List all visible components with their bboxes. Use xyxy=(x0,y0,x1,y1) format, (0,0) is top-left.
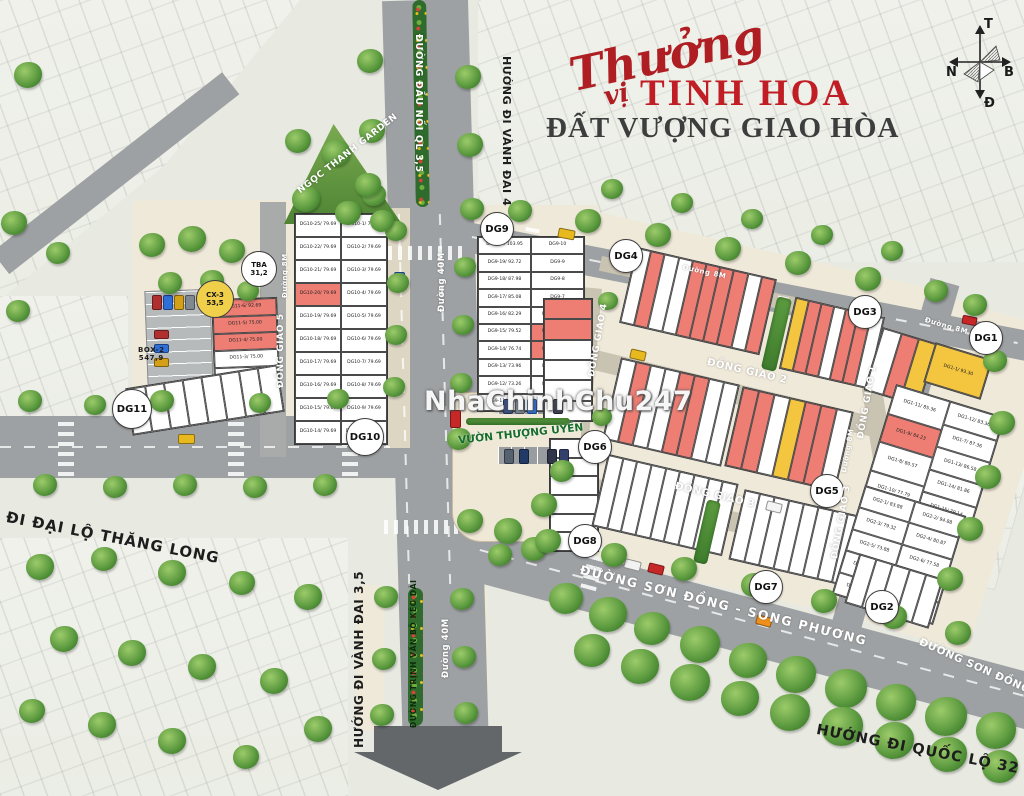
master-plan-map: DG10-25/ 79.69DG10-22/ 79.69DG10-21/ 79.… xyxy=(0,0,1024,796)
tree-icon xyxy=(103,476,127,498)
plot-cell: DG10-22/ 79.69 xyxy=(295,237,341,260)
tree-icon xyxy=(825,669,867,708)
road-label-trinh-van-bo: ĐƯỜNG TRỊNH VĂN BÔ KÉO DÀI xyxy=(409,579,418,728)
road-label-dau-noi-ql35: ĐƯỜNG ĐẦU NỐI QL 3,5 xyxy=(413,34,424,173)
badge-dg10: DG10 xyxy=(346,418,384,456)
car-icon xyxy=(174,295,184,310)
tree-icon xyxy=(574,634,610,667)
tree-icon xyxy=(721,681,759,716)
box2-area: 547,9 xyxy=(138,354,165,362)
plot-cell: DG9-14/ 76.74 xyxy=(478,341,531,358)
tree-icon xyxy=(634,612,670,645)
plot-cell: DG9-16/ 82.29 xyxy=(478,307,531,324)
dg9-left-column: DG9-20/ 103.95DG9-19/ 92.72DG9-18/ 87.98… xyxy=(478,237,531,411)
car-icon xyxy=(163,295,173,310)
badge-dg2: DG2 xyxy=(865,590,899,624)
badge-dg4: DG4 xyxy=(609,239,643,273)
plot-cell: DG10-5/ 79.69 xyxy=(341,306,387,329)
plot-cell: DG10-19/ 79.69 xyxy=(295,306,341,329)
plot-cell: DG9-17/ 85.08 xyxy=(478,289,531,306)
plot-cell xyxy=(544,340,592,360)
compass-d: Đ xyxy=(984,96,995,108)
tree-icon xyxy=(173,474,197,496)
plot-cell xyxy=(544,360,592,380)
car-icon xyxy=(504,449,514,464)
cx3-circle: CX-3 53,5 xyxy=(196,280,234,318)
plot-cell: DG9-10 xyxy=(531,237,584,254)
plot-cell xyxy=(544,319,592,339)
plot-cell: DG10-2/ 79.69 xyxy=(341,237,387,260)
crosswalk xyxy=(388,246,464,260)
dg10-left-column: DG10-25/ 79.69DG10-22/ 79.69DG10-21/ 79.… xyxy=(295,214,341,444)
badge-dg1: DG1 xyxy=(969,321,1003,355)
dg10-right-column: DG10-1/ 79.69DG10-2/ 79.69DG10-3/ 79.69D… xyxy=(341,214,387,444)
tba-circle: TBA 31,2 xyxy=(241,251,277,287)
plot-cell: DG10-20/ 79.69 xyxy=(295,283,341,306)
cx3-area: 53,5 xyxy=(206,299,223,307)
plot-cell: DG9-18/ 87.98 xyxy=(478,272,531,289)
plot-cell: DG10-18/ 79.69 xyxy=(295,329,341,352)
road-label-40m-top: Đường 40M xyxy=(437,252,447,312)
plot-cell: DG10-25/ 79.69 xyxy=(295,214,341,237)
tree-icon xyxy=(925,697,967,736)
tba-name: TBA xyxy=(251,261,267,269)
tree-icon xyxy=(285,129,311,153)
badge-dg3: DG3 xyxy=(848,295,882,329)
crosswalk xyxy=(58,420,74,476)
plot-block-dg10: DG10-25/ 79.69DG10-22/ 79.69DG10-21/ 79.… xyxy=(294,213,388,445)
tree-icon xyxy=(243,476,267,498)
title-subtitle: ĐẤT VƯỢNG GIAO HÒA xyxy=(546,112,899,145)
box2-label: BOX-2 547,9 xyxy=(138,346,165,363)
tree-icon xyxy=(589,597,627,632)
compass-icon: T N B Đ xyxy=(946,16,1014,108)
south-arrow-icon xyxy=(340,722,530,794)
badge-dg9: DG9 xyxy=(480,212,514,246)
tree-icon xyxy=(374,586,398,608)
badge-dg11: DG11 xyxy=(112,389,152,429)
plot-cell: DG10-4/ 79.69 xyxy=(341,283,387,306)
tree-icon xyxy=(776,656,816,693)
tree-icon xyxy=(33,474,57,496)
watermark: NhaChinhChu247 xyxy=(424,386,692,417)
badge-dg7: DG7 xyxy=(749,570,783,604)
tree-icon xyxy=(357,49,383,73)
plot-cell: DG9-8 xyxy=(531,272,584,289)
tree-icon xyxy=(876,684,916,721)
road-label-vanh-dai-35: HƯỚNG ĐI VÀNH ĐAI 3,5 xyxy=(352,571,366,748)
tree-icon xyxy=(313,474,337,496)
car-icon xyxy=(154,330,169,339)
compass-b: B xyxy=(1004,65,1014,80)
tree-icon xyxy=(976,712,1016,749)
plot-cell: DG10-6/ 79.69 xyxy=(341,329,387,352)
crosswalk xyxy=(228,420,244,476)
street-label-dong-giao-5: ĐỒNG GIAO 5 xyxy=(276,313,286,388)
compass-t: T xyxy=(984,17,993,32)
tree-icon xyxy=(680,626,720,663)
tba-area: 31,2 xyxy=(250,269,267,277)
road-label-vanh-dai-4: HƯỚNG ĐI VÀNH ĐAI 4 xyxy=(500,56,513,206)
plot-cell: DG10-14/ 79.69 xyxy=(295,421,341,444)
street-label-8m-1: Đường 8M xyxy=(281,253,289,298)
tree-icon xyxy=(621,649,659,684)
plot-cell: DG9-15/ 79.52 xyxy=(478,324,531,341)
tree-icon xyxy=(670,664,710,701)
plot-cell: DG10-7/ 79.69 xyxy=(341,352,387,375)
crosswalk xyxy=(384,520,458,534)
tree-icon xyxy=(729,643,767,678)
tree-icon xyxy=(372,648,396,670)
plot-cell: DG9-13/ 73.96 xyxy=(478,359,531,376)
road-label-40m-bottom: Đường 40M xyxy=(441,618,451,678)
car-icon xyxy=(178,434,195,444)
plot-cell: DG9-19/ 92.72 xyxy=(478,254,531,271)
badge-dg8: DG8 xyxy=(568,524,602,558)
car-icon xyxy=(152,295,162,310)
title-main: TINH HOA xyxy=(640,72,852,115)
box2-name: BOX-2 xyxy=(138,346,165,354)
compass-n: N xyxy=(946,65,957,80)
plot-cell: DG10-3/ 79.69 xyxy=(341,260,387,283)
plot-cell xyxy=(550,495,598,514)
car-icon xyxy=(185,295,195,310)
plot-cell: DG10-21/ 79.69 xyxy=(295,260,341,283)
plot-cell xyxy=(544,299,592,319)
cx3-name: CX-3 xyxy=(206,291,224,299)
badge-dg6: DG6 xyxy=(578,430,612,464)
tree-icon xyxy=(46,242,70,264)
car-icon xyxy=(519,449,529,464)
plot-cell: DG9-9 xyxy=(531,254,584,271)
tree-icon xyxy=(770,694,810,731)
plot-cell: DG10-17/ 79.69 xyxy=(295,352,341,375)
